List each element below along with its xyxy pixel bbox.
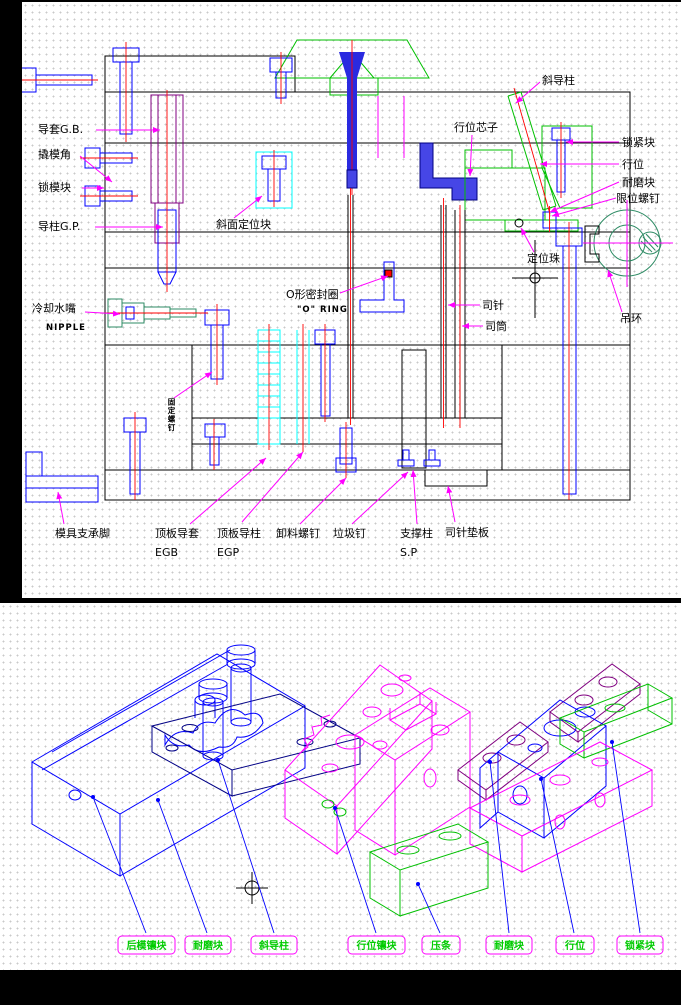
- cross-section-panel: 导套G.B. 撬模角 锁模块 导柱G.P. 冷却水嘴 NIPPLE 斜面定位块 …: [22, 2, 681, 598]
- ejector-guides: [258, 324, 309, 452]
- slide-insert-plate: [285, 665, 432, 854]
- label-pin-retainer-plate: 司针垫板: [445, 525, 489, 539]
- label-locating-ball: 定位珠: [527, 251, 560, 265]
- label-egp: EGP: [217, 546, 239, 559]
- label-mold-foot: 模具支承脚: [55, 526, 110, 540]
- locking-bar: [560, 684, 672, 758]
- ejector-pins: [348, 188, 465, 428]
- label-box-slide: 行位: [556, 936, 594, 954]
- label-eye-bolt: 吊环: [620, 312, 642, 325]
- svg-text:锁紧块: 锁紧块: [625, 939, 656, 952]
- exploded-label-row: 后模镶块 耐磨块 斜导柱 行位镶块 压条 耐磨块 行位 锁紧块: [118, 936, 663, 954]
- svg-text:压条: 压条: [431, 939, 452, 952]
- slider-seat: [322, 688, 470, 855]
- eye-bolt: [583, 200, 673, 287]
- mold-feet: [26, 452, 98, 502]
- label-o-ring: O形密封圈: [286, 287, 339, 301]
- water-elbow: [360, 262, 404, 312]
- label-slide: 行位: [622, 157, 644, 171]
- label-box-press-strip: 压条: [422, 936, 460, 954]
- label-egb: EGB: [155, 546, 178, 559]
- label-guide-pin: 导柱G.P.: [38, 219, 80, 233]
- label-stop-pin: 垃圾钉: [333, 526, 366, 540]
- guide-pin-assembly: [151, 90, 183, 292]
- rear-insert-block: [32, 650, 305, 876]
- bolts: [22, 42, 582, 500]
- svg-text:行位: 行位: [564, 939, 585, 952]
- cooling-nipple: [100, 299, 208, 327]
- label-ejector-sleeve: 司筒: [485, 319, 507, 333]
- label-nipple-en: NIPPLE: [46, 323, 86, 333]
- label-box-slide-insert: 行位镶块: [348, 936, 405, 954]
- label-lock-block: 锁模块: [38, 180, 71, 194]
- label-puller-screw: 卸料螺钉: [276, 526, 320, 540]
- svg-text:斜导柱: 斜导柱: [258, 939, 289, 952]
- label-support-pillar: 支撑柱: [400, 526, 433, 540]
- label-box-angle-pin: 斜导柱: [251, 936, 297, 954]
- cad-document: { "colors": { "background": "#000000", "…: [0, 0, 681, 1005]
- svg-text:耐磨块: 耐磨块: [193, 939, 224, 952]
- label-box-wear-block-2: 耐磨块: [486, 936, 532, 954]
- angle-pin: [508, 88, 556, 214]
- exploded-view-panel: 后模镶块 耐磨块 斜导柱 行位镶块 压条 耐磨块 行位 锁紧块: [0, 603, 681, 970]
- cross-section-drawing: 导套G.B. 撬模角 锁模块 导柱G.P. 冷却水嘴 NIPPLE 斜面定位块 …: [22, 2, 681, 598]
- slide-carrier-plate: [470, 742, 652, 872]
- svg-text:耐磨块: 耐磨块: [494, 939, 525, 952]
- label-cooling-nipple: 冷却水嘴: [32, 302, 76, 315]
- label-box-rear-insert: 后模镶块: [118, 936, 175, 954]
- stop-pins: [398, 450, 440, 466]
- label-guide-bushing: 导套G.B.: [38, 123, 83, 136]
- slider-block: [480, 700, 606, 838]
- label-pry-corner: 撬模角: [38, 147, 71, 161]
- label-ejector-pin: 司针: [482, 298, 504, 312]
- angle-pin-plate: [152, 645, 360, 796]
- label-box-wear-block-1: 耐磨块: [185, 936, 231, 954]
- label-ejector-guide-bushing: 顶板导套: [155, 526, 199, 540]
- label-wear-block: 耐磨块: [622, 176, 655, 189]
- label-box-locking-block: 锁紧块: [617, 936, 663, 954]
- svg-text:行位镶块: 行位镶块: [356, 939, 398, 952]
- label-fixing-screw: 固定螺钉: [166, 398, 177, 432]
- label-sp: S.P: [400, 546, 417, 559]
- molded-part: [347, 143, 477, 200]
- wear-plates: [458, 664, 640, 800]
- exploded-view-drawing: 后模镶块 耐磨块 斜导柱 行位镶块 压条 耐磨块 行位 锁紧块: [0, 603, 681, 970]
- o-ring-seal: [385, 270, 392, 277]
- label-angle-guide-pin: 斜导柱: [542, 73, 575, 87]
- label-ejector-guide-pin: 顶板导柱: [217, 526, 261, 540]
- label-slide-core: 行位芯子: [454, 120, 498, 134]
- svg-text:后模镶块: 后模镶块: [127, 939, 168, 952]
- label-taper-locating-block: 斜面定位块: [216, 217, 271, 231]
- label-locking-block: 锁紧块: [622, 135, 655, 149]
- label-limit-screw: 限位螺钉: [616, 191, 660, 205]
- label-o-ring-en: "O" RING: [297, 305, 348, 315]
